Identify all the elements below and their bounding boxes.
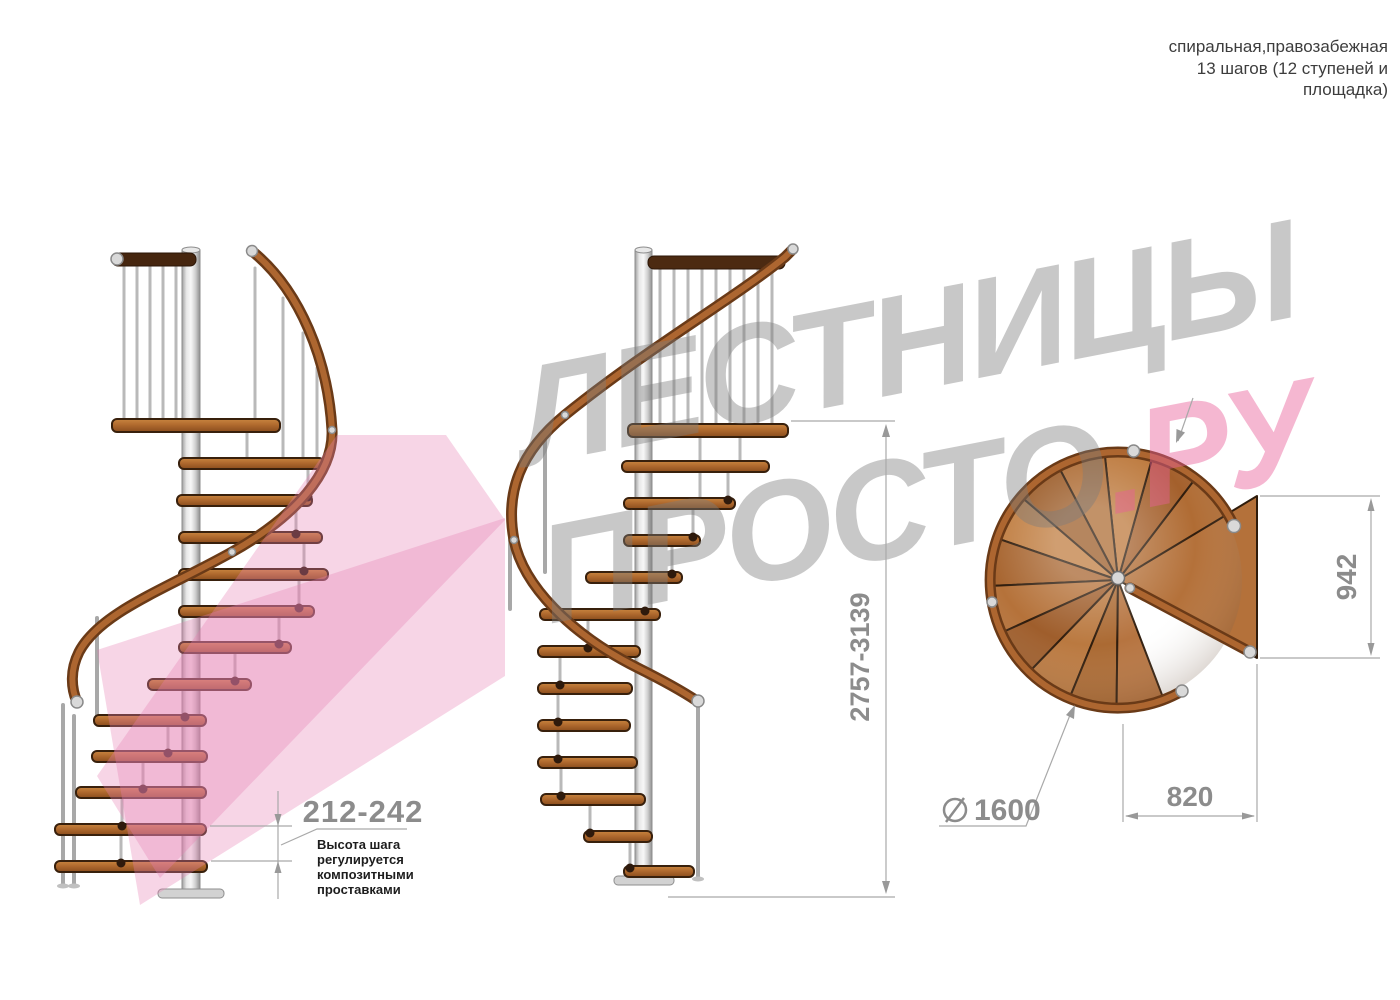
title-line-3: площадка) [968, 79, 1388, 101]
drawing-sheet: ЛЕСТНИЦЫ ПРОСТО.РУ 212-242 Высота шага р… [0, 0, 1400, 1000]
step-height-note: Высота шага регулируется композитными пр… [317, 837, 414, 897]
note-line: регулируется [317, 852, 404, 867]
step-height-dimension: 212-242 Высота шага регулируется компози… [210, 791, 423, 899]
note-line: проставками [317, 882, 401, 897]
diameter-value: 1600 [974, 794, 1041, 827]
drawing-title: спиральная,правозабежная 13 шагов (12 ст… [968, 36, 1388, 101]
platform-depth-value: 820 [1167, 781, 1214, 812]
platform-depth-dimension: 820 [1123, 664, 1257, 822]
total-height-value: 2757-3139 [845, 592, 875, 721]
plan-leader-arrow [1176, 398, 1193, 443]
total-height-dimension: 2757-3139 [668, 421, 895, 897]
note-line: Высота шага [317, 837, 401, 852]
note-line: композитными [317, 867, 414, 882]
diameter-dimension: 1600 [939, 705, 1075, 827]
title-line-2: 13 шагов (12 ступеней и [968, 58, 1388, 80]
platform-width-dimension: 942 [1260, 496, 1380, 658]
platform-width-value: 942 [1331, 554, 1362, 601]
title-line-1: спиральная,правозабежная [968, 36, 1388, 58]
diameter-symbol [944, 798, 966, 822]
step-height-value: 212-242 [303, 794, 424, 829]
dimension-layer: 212-242 Высота шага регулируется компози… [0, 0, 1400, 1000]
